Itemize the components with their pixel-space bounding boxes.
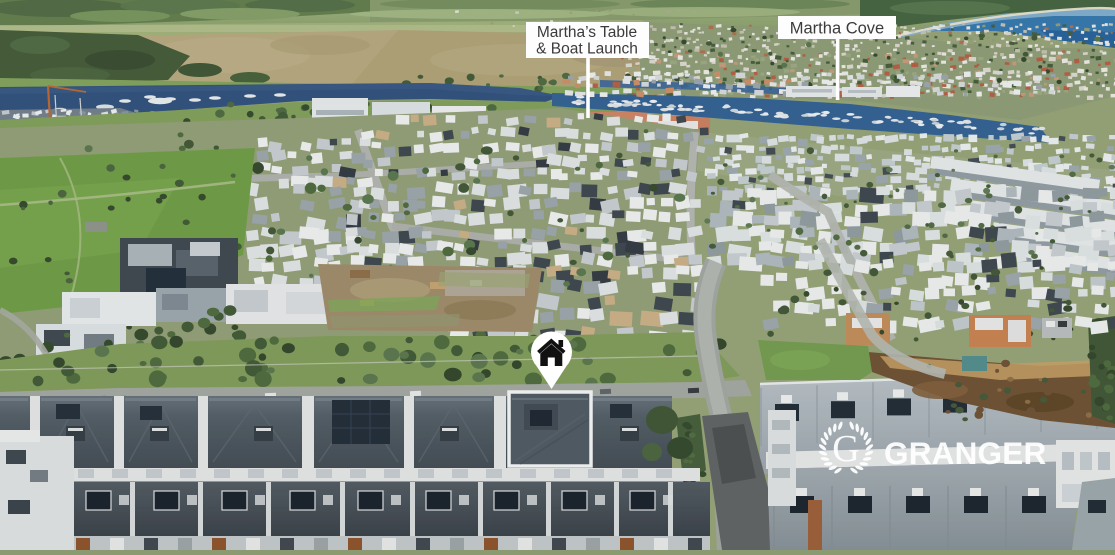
svg-text:Martha Cove: Martha Cove: [790, 20, 884, 38]
svg-text:Martha’s Table: Martha’s Table: [537, 24, 637, 41]
svg-text:GRANGER: GRANGER: [884, 435, 1046, 471]
svg-text:G: G: [832, 428, 859, 470]
svg-text:& Boat Launch: & Boat Launch: [536, 41, 638, 58]
